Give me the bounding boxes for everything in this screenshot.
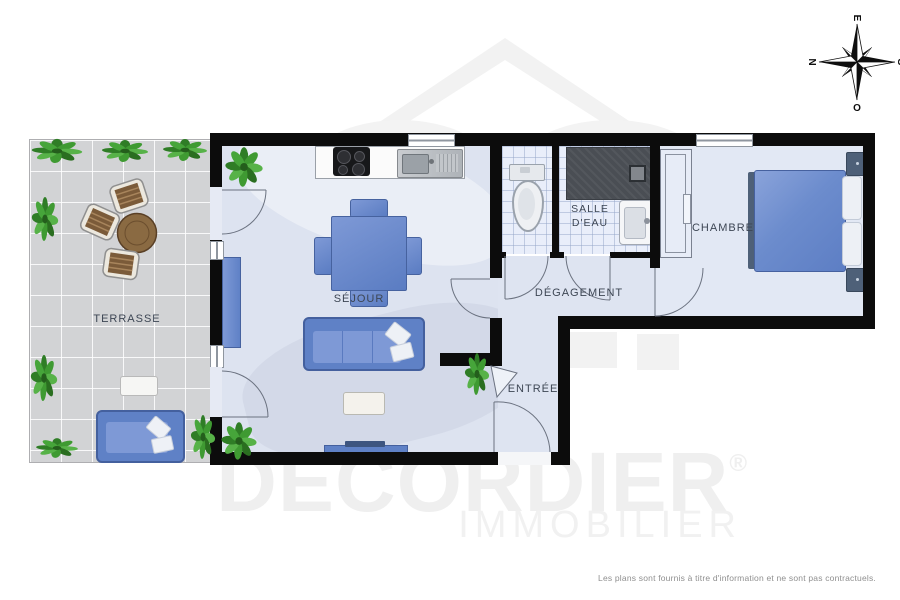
bed-duvet (754, 170, 846, 272)
wall (650, 133, 660, 268)
window (210, 345, 224, 368)
faucet (429, 159, 434, 164)
shower-drain (629, 165, 646, 182)
window (408, 134, 455, 147)
logo-watermark-block (637, 334, 679, 370)
disclaimer-text: Les plans sont fournis à titre d'informa… (598, 573, 876, 583)
outdoor-sofa (96, 410, 185, 463)
burner (337, 150, 351, 164)
room-label-terrasse: TERRASSE (93, 312, 160, 326)
room-label-entree: ENTRÉE (508, 382, 559, 396)
sink-basin (402, 154, 429, 174)
wall (210, 133, 875, 146)
washbasin-bowl (624, 207, 646, 239)
washbasin (619, 200, 653, 245)
wardrobe (660, 149, 692, 258)
wall (863, 133, 875, 329)
brand-watermark-subtitle: IMMOBILIER (150, 504, 742, 547)
sofa-cushion (151, 435, 175, 454)
burner (338, 165, 348, 175)
wall (558, 316, 570, 465)
cooktop (333, 147, 370, 176)
wall (610, 252, 655, 258)
burner (354, 151, 365, 162)
room-label-degagement: DÉGAGEMENT (535, 286, 623, 300)
room-label-chambre: CHAMBRE (692, 221, 754, 235)
wall (440, 353, 502, 366)
sofa (303, 317, 425, 371)
nightstand-knob (856, 278, 859, 281)
toilet (506, 162, 546, 232)
registered-mark: ® (729, 450, 748, 477)
wardrobe-handle (683, 194, 691, 224)
window (696, 134, 753, 147)
wall (558, 316, 875, 329)
room-label-sejour: SÉJOUR (334, 292, 385, 306)
toilet-bowl-inner (518, 188, 535, 220)
entry-door-opening (498, 452, 551, 465)
burner (352, 163, 365, 176)
pillow (842, 222, 862, 266)
floor-plan: DECORDIER® IMMOBILIER (0, 0, 900, 600)
door-opening (210, 367, 222, 417)
wall (550, 252, 564, 258)
door-opening (210, 187, 222, 240)
flush-button (520, 167, 530, 173)
wall (490, 318, 502, 355)
kitchen-sink (397, 149, 463, 178)
drainboard (436, 154, 458, 172)
logo-watermark-block (565, 332, 617, 368)
wall (552, 146, 559, 252)
nightstand-knob (856, 162, 859, 165)
coffee-table (343, 392, 385, 415)
dining-table (331, 216, 407, 291)
pillow (842, 176, 862, 220)
sideboard (222, 257, 241, 348)
window (210, 241, 224, 260)
room-label-salle-deau: SALLE D'EAU (571, 202, 609, 230)
wall (490, 252, 506, 258)
outdoor-coffee-table (120, 376, 158, 396)
shower (566, 147, 652, 200)
tv-screen (345, 441, 385, 447)
